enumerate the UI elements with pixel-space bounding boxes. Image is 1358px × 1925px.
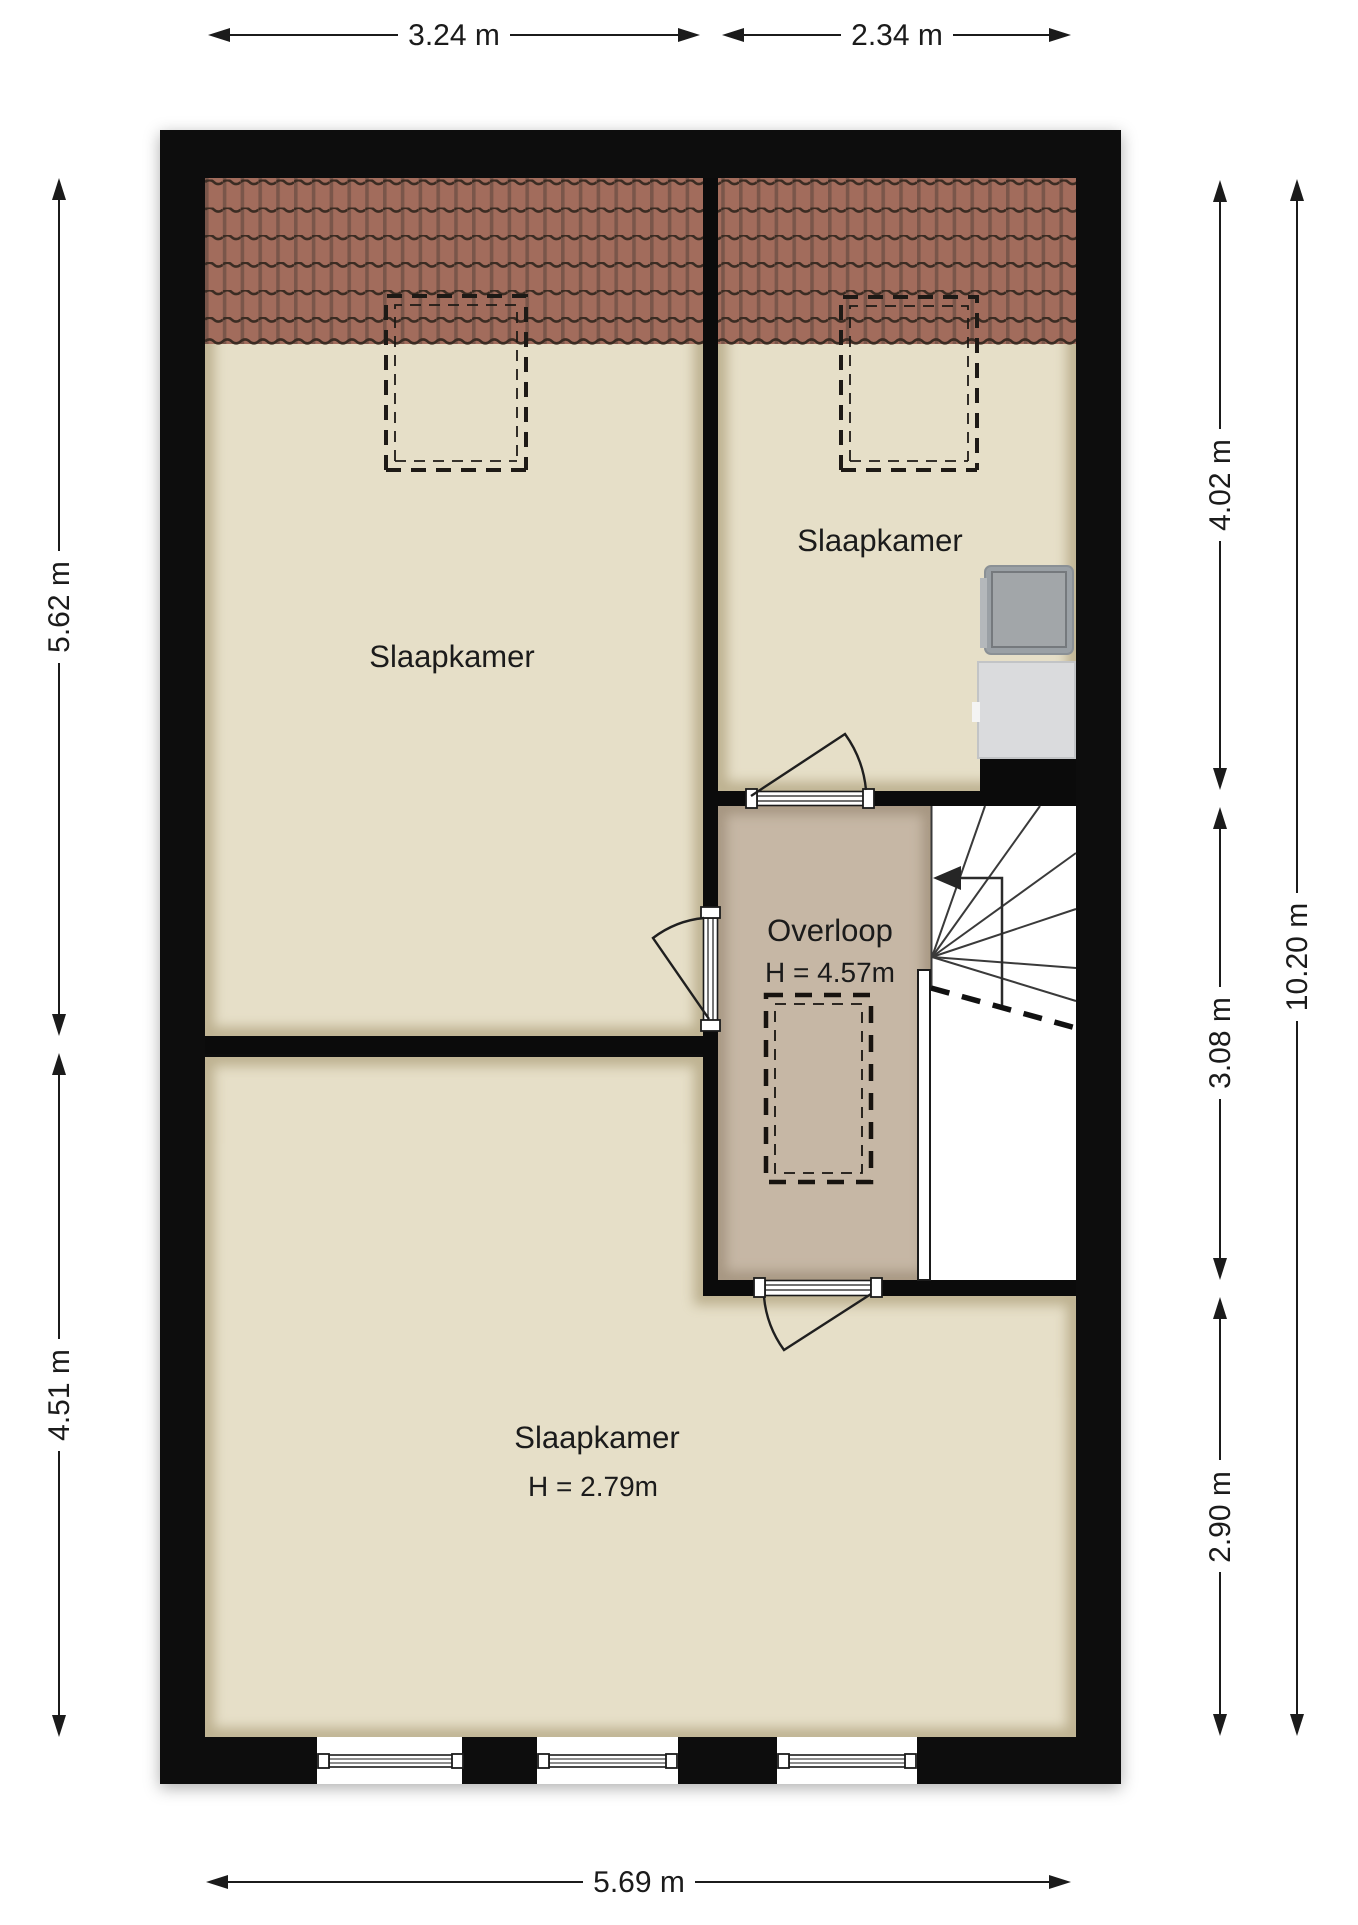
- svg-text:H = 2.79m: H = 2.79m: [528, 1471, 658, 1502]
- svg-text:Slaapkamer: Slaapkamer: [369, 639, 534, 674]
- svg-text:4.51 m: 4.51 m: [43, 1349, 76, 1441]
- svg-text:10.20 m: 10.20 m: [1281, 903, 1314, 1011]
- svg-text:2.34 m: 2.34 m: [851, 19, 943, 52]
- svg-text:Slaapkamer: Slaapkamer: [514, 1420, 679, 1455]
- svg-text:3.08 m: 3.08 m: [1204, 997, 1237, 1089]
- svg-text:4.02 m: 4.02 m: [1204, 439, 1237, 531]
- svg-text:5.69 m: 5.69 m: [593, 1866, 685, 1899]
- svg-text:5.62 m: 5.62 m: [43, 561, 76, 653]
- svg-text:3.24 m: 3.24 m: [408, 19, 500, 52]
- svg-text:H = 4.57m: H = 4.57m: [765, 957, 895, 988]
- svg-text:2.90 m: 2.90 m: [1204, 1471, 1237, 1563]
- svg-text:Overloop: Overloop: [767, 913, 893, 948]
- svg-text:Slaapkamer: Slaapkamer: [797, 523, 962, 558]
